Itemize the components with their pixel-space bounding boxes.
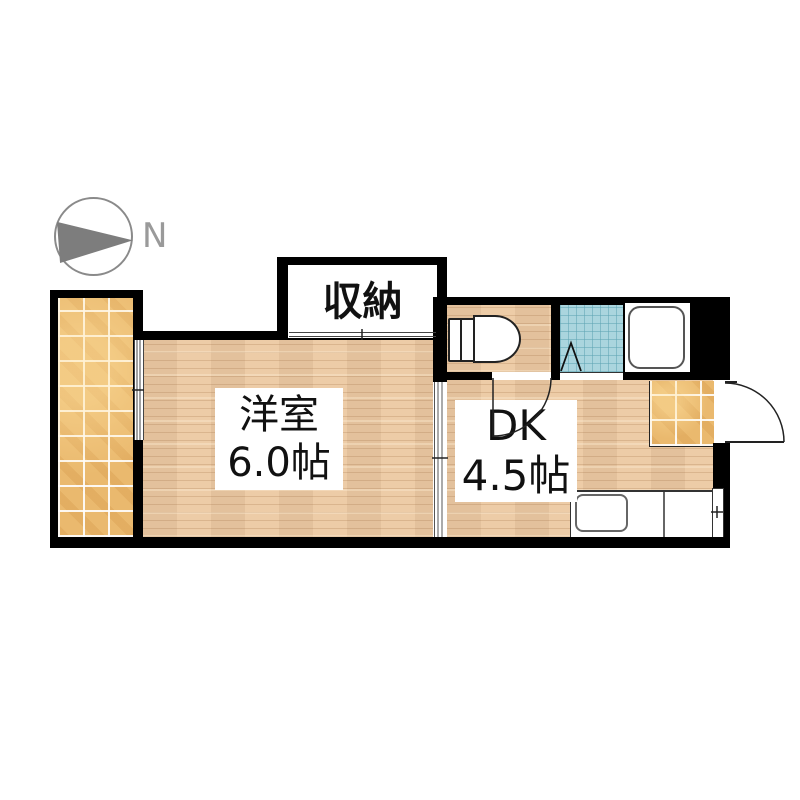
closet-sliding-door-icon bbox=[288, 331, 437, 338]
toilet-tank-icon bbox=[448, 318, 476, 362]
toilet-door-opening bbox=[492, 372, 551, 380]
bathroom-floor bbox=[560, 305, 623, 372]
western-room-name: 洋室 bbox=[239, 391, 319, 439]
balcony-floor bbox=[58, 298, 133, 537]
entrance-tile-floor bbox=[649, 381, 714, 447]
floorplan-canvas: N 収納 洋室 6.0帖 DK 4.5帖 bbox=[0, 0, 800, 800]
bottom-wall bbox=[50, 537, 730, 548]
north-label: N bbox=[142, 216, 167, 256]
balcony-window-icon bbox=[134, 340, 144, 440]
closet-room: 収納 bbox=[288, 265, 437, 331]
dk-label: DK 4.5帖 bbox=[455, 400, 577, 502]
kitchen-sink-icon bbox=[575, 494, 628, 532]
dk-name: DK bbox=[486, 401, 546, 451]
sliding-door-icon bbox=[434, 382, 448, 537]
partition-wall bbox=[433, 331, 447, 382]
toilet-tank-divider bbox=[460, 320, 462, 360]
kitchen-window-icon bbox=[712, 488, 724, 538]
closet-label: 収納 bbox=[288, 265, 437, 331]
western-room-size: 6.0帖 bbox=[227, 439, 331, 487]
western-room-top-wall bbox=[133, 331, 277, 340]
entrance-door-arc-icon bbox=[725, 382, 784, 442]
dk-size: 4.5帖 bbox=[462, 451, 571, 501]
western-room-label: 洋室 6.0帖 bbox=[215, 388, 343, 490]
bathtub-icon bbox=[628, 306, 685, 369]
